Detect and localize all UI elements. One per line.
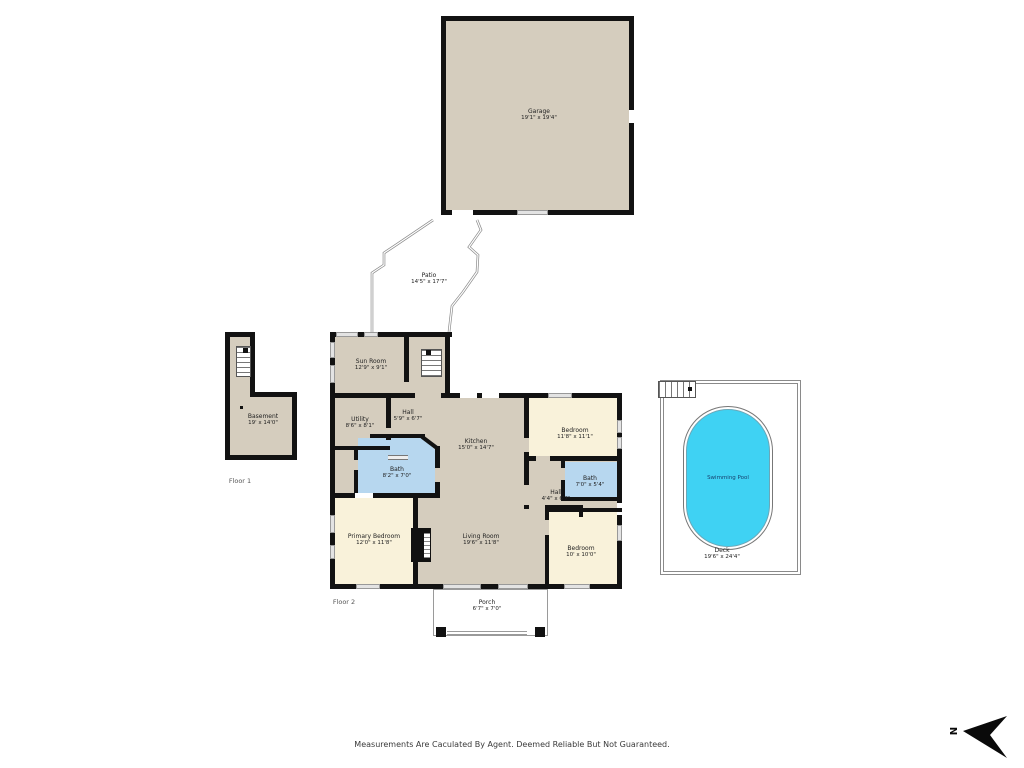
room-dims: 8'6" x 8'1" [346, 423, 375, 430]
floor-2-label: Floor 2 [333, 598, 355, 606]
north-label: N [949, 727, 960, 735]
swimming-pool-water: Swimming Pool [686, 409, 770, 547]
room-label-deck: Deck 19'6" x 24'4" [704, 547, 740, 561]
room-label-utility: Utility 8'6" x 8'1" [346, 416, 375, 430]
room-label-kitchen: Kitchen 15'0" x 14'7" [458, 438, 494, 452]
window [548, 393, 572, 398]
wall [441, 16, 446, 215]
room-dims: 19'6" x 24'4" [704, 554, 740, 561]
room-label-bedroom-bottom: Bedroom 10' x 10'0" [566, 545, 596, 559]
wall [413, 497, 418, 530]
door-opening [561, 468, 565, 480]
room-name: Porch [473, 599, 502, 606]
room-dims: 7'0" x 5'4" [576, 482, 605, 489]
room-name: Deck [704, 547, 740, 554]
room-name: Hall [542, 489, 571, 496]
window [564, 584, 590, 589]
door-opening [460, 393, 477, 398]
room-name: Bath [576, 475, 605, 482]
door-opening [354, 460, 358, 470]
wall [292, 392, 297, 460]
room-dims: 19'6" x 11'8" [463, 540, 500, 547]
room-dims: 10' x 10'0" [566, 552, 596, 559]
door-opening [524, 485, 529, 505]
door-opening [355, 493, 373, 498]
stair-marker [243, 348, 248, 353]
window [336, 332, 358, 337]
porch-step [447, 631, 527, 632]
room-label-primary-bedroom: Primary Bedroom 12'0" x 11'8" [348, 533, 400, 547]
door-opening [435, 468, 440, 482]
room-dims: 15'0" x 14'7" [458, 445, 494, 452]
room-label-porch: Porch 6'7" x 7'0" [473, 599, 502, 613]
room-name: Hall [394, 409, 423, 416]
window [330, 365, 335, 383]
wall [441, 16, 634, 21]
door-opening [524, 438, 529, 452]
window [617, 525, 622, 541]
porch-step [447, 634, 527, 635]
door-opening [415, 393, 441, 398]
room-name: Living Room [463, 533, 500, 540]
window [330, 545, 335, 559]
stair-marker [688, 387, 692, 391]
room-label-garage: Garage 19'1" x 19'4" [521, 108, 557, 122]
door-marker [240, 406, 243, 409]
stair-marker [426, 350, 431, 355]
window [364, 332, 378, 337]
door-opening [629, 110, 634, 123]
floor-plan-canvas: Swimming Pool Garage 19'1" x 19'4" Patio… [0, 0, 1024, 768]
room-dims: 11'8" x 11'1" [557, 434, 593, 441]
room-dims: 8'2" x 7'0" [383, 473, 412, 480]
main-stairs [421, 349, 442, 377]
door-opening [545, 520, 549, 535]
room-dims: 14'5" x 17'7" [411, 279, 447, 286]
porch-post [535, 627, 545, 637]
wall [370, 434, 425, 438]
room-name: Garage [521, 108, 557, 115]
room-name: Utility [346, 416, 375, 423]
wall [354, 450, 358, 497]
porch-post [436, 627, 446, 637]
room-label-basement: Basement 19' x 14'0" [248, 413, 278, 427]
room-label-bath-main: Bath 8'2" x 7'0" [383, 466, 412, 480]
door-opening [404, 382, 409, 393]
room-dims: 5'9" x 6'7" [394, 416, 423, 423]
wall [334, 446, 390, 450]
room-label-living-room: Living Room 19'6" x 11'8" [463, 533, 500, 547]
room-name: Bedroom [566, 545, 596, 552]
bath-fixture [388, 455, 408, 460]
room-name: Sun Room [355, 358, 387, 365]
window [356, 584, 380, 589]
wall [445, 332, 450, 393]
window [617, 420, 622, 433]
room-dims: 4'4" x 6'7" [542, 496, 571, 503]
room-dims: 19' x 14'0" [248, 420, 278, 427]
room-name: Swimming Pool [707, 475, 749, 481]
room-dims: 12'9" x 9'1" [355, 365, 387, 372]
room-dims: 12'0" x 11'8" [348, 540, 400, 547]
room-name: Patio [411, 272, 447, 279]
wall [545, 508, 622, 512]
fireplace-hatch [424, 533, 430, 558]
room-name: Kitchen [458, 438, 494, 445]
room-label-hall-lower: Hall 4'4" x 6'7" [542, 489, 571, 503]
floor-1-label: Floor 1 [229, 477, 251, 485]
room-name: Primary Bedroom [348, 533, 400, 540]
room-label-patio: Patio 14'5" x 17'7" [411, 272, 447, 286]
room-label-bath-right: Bath 7'0" x 5'4" [576, 475, 605, 489]
garage-door [517, 210, 548, 215]
room-name: Basement [248, 413, 278, 420]
window [330, 342, 335, 358]
north-arrow-icon: N [943, 712, 1013, 764]
wall [225, 455, 297, 460]
room-name: Bedroom [557, 427, 593, 434]
wall [413, 560, 418, 586]
window [330, 515, 335, 533]
room-label-hall-upper: Hall 5'9" x 6'7" [394, 409, 423, 423]
room-dims: 19'1" x 19'4" [521, 115, 557, 122]
disclaimer-text: Measurements Are Caculated By Agent. Dee… [0, 740, 1024, 749]
wall [225, 332, 230, 460]
window [617, 437, 622, 449]
wall [330, 493, 440, 498]
door-opening [536, 456, 550, 461]
swimming-pool: Swimming Pool [683, 406, 773, 550]
room-label-bedroom-right: Bedroom 11'8" x 11'1" [557, 427, 593, 441]
door-opening [482, 393, 499, 398]
room-dims: 6'7" x 7'0" [473, 606, 502, 613]
room-label-sun-room: Sun Room 12'9" x 9'1" [355, 358, 387, 372]
room-name: Bath [383, 466, 412, 473]
wall [250, 392, 297, 397]
